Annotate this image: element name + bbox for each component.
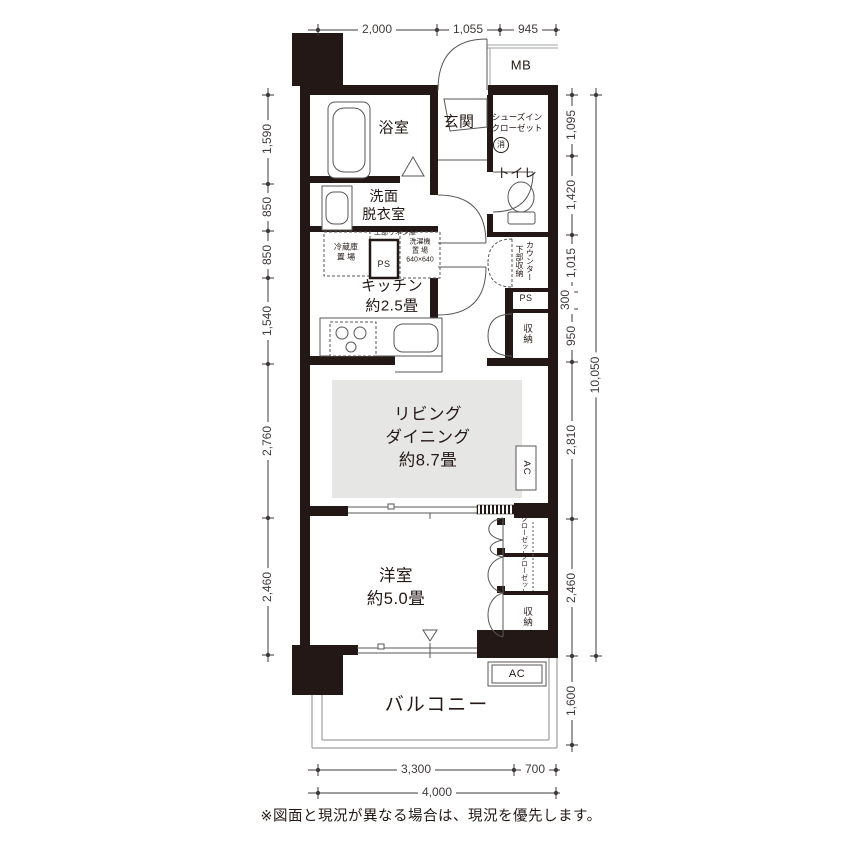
- closet-bifold-doors: [488, 518, 503, 637]
- dim-left-2: 850: [260, 241, 276, 269]
- floorplan-canvas: 2,000 1,055 945 3,300 700 4,000 1,590 85…: [0, 0, 842, 842]
- disclaimer-note: ※図面と現況が異なる場合は、現況を優先します。: [260, 808, 601, 827]
- entrance-door: [438, 39, 487, 90]
- label-linen: 上部リネン庫: [374, 228, 416, 237]
- bath-door-marker: [402, 157, 424, 176]
- dim-left-4: 2,760: [260, 422, 276, 460]
- burner: [336, 327, 348, 339]
- label-ac-balcony: AC: [509, 667, 525, 681]
- dim-left-5: 2,460: [260, 568, 276, 606]
- toilet-tank: [508, 212, 535, 224]
- bathtub-inner: [333, 108, 365, 172]
- dim-right-2: 1,015: [564, 244, 580, 282]
- label-laundry: 洗濯機 置 場 640×640: [406, 237, 433, 264]
- label-bath: 浴室: [378, 118, 409, 138]
- label-ac-living: AC: [520, 460, 532, 475]
- washroom-door: [438, 195, 486, 243]
- hall-living-door: [438, 267, 486, 315]
- label-fridge: 冷蔵庫 置 場: [334, 243, 358, 264]
- vanity-bowl: [326, 192, 348, 224]
- label-ps-shaft: PS: [519, 293, 532, 305]
- label-closet-2: クローゼット: [519, 553, 528, 595]
- label-bedroom: 洋室 約5.0畳: [367, 565, 425, 611]
- dim-right-5: 2,810: [564, 421, 580, 459]
- hatch-shelf: [477, 505, 514, 514]
- dim-right-total: 10,050: [588, 353, 604, 398]
- toilet-bowl: [508, 182, 534, 212]
- dim-right-6: 2,460: [564, 569, 580, 607]
- dim-left-0: 1,590: [260, 120, 276, 158]
- dim-right-3: 300: [558, 286, 574, 314]
- label-storage-mid: 収納: [520, 324, 532, 345]
- label-kitchen: キッチン 約2.5畳: [361, 277, 423, 316]
- dim-top-1: 1,055: [449, 22, 487, 38]
- burner: [346, 342, 356, 352]
- partition-track: [348, 507, 477, 513]
- partition-handle: [388, 504, 394, 509]
- dim-top-0: 2,000: [358, 22, 396, 38]
- dim-bottom-total: 4,000: [418, 785, 456, 801]
- label-living-dining: リビング ダイニング 約8.7畳: [386, 403, 471, 472]
- burner: [354, 327, 366, 339]
- label-washroom: 洗面 脱衣室: [362, 187, 406, 223]
- label-closet-1: クローゼット: [519, 515, 528, 557]
- dim-right-0: 1,095: [564, 106, 580, 144]
- dim-bottom-1: 700: [521, 762, 549, 778]
- dim-left-1: 850: [260, 193, 276, 221]
- bedroom-window: [357, 648, 477, 653]
- window-marker: [423, 630, 437, 641]
- dim-top-2: 945: [514, 22, 542, 38]
- counter-storage-doors: [488, 239, 512, 287]
- label-ps-kitchen: PS: [377, 259, 390, 271]
- label-shoes-in-closet: シューズイン クローゼット: [491, 112, 542, 134]
- kitchen-counter-front: [395, 356, 442, 372]
- label-entrance: 玄関: [443, 112, 474, 132]
- window-handle: [378, 644, 384, 649]
- dim-bottom-0: 3,300: [397, 762, 435, 778]
- fire-extinguisher-badge: 消: [493, 137, 509, 153]
- dim-right-1: 1,420: [564, 176, 580, 214]
- sink: [394, 324, 438, 352]
- label-toilet: トイレ: [497, 166, 538, 183]
- dim-right-4: 950: [564, 322, 580, 350]
- label-storage-bedroom: 収納: [520, 607, 532, 628]
- dim-right-7: 1,600: [564, 682, 580, 720]
- label-mb: MB: [511, 58, 532, 75]
- dim-left-3: 1,540: [260, 302, 276, 340]
- label-balcony: バルコニー: [385, 694, 490, 719]
- label-counter-storage: カウンター下部収納: [514, 238, 535, 284]
